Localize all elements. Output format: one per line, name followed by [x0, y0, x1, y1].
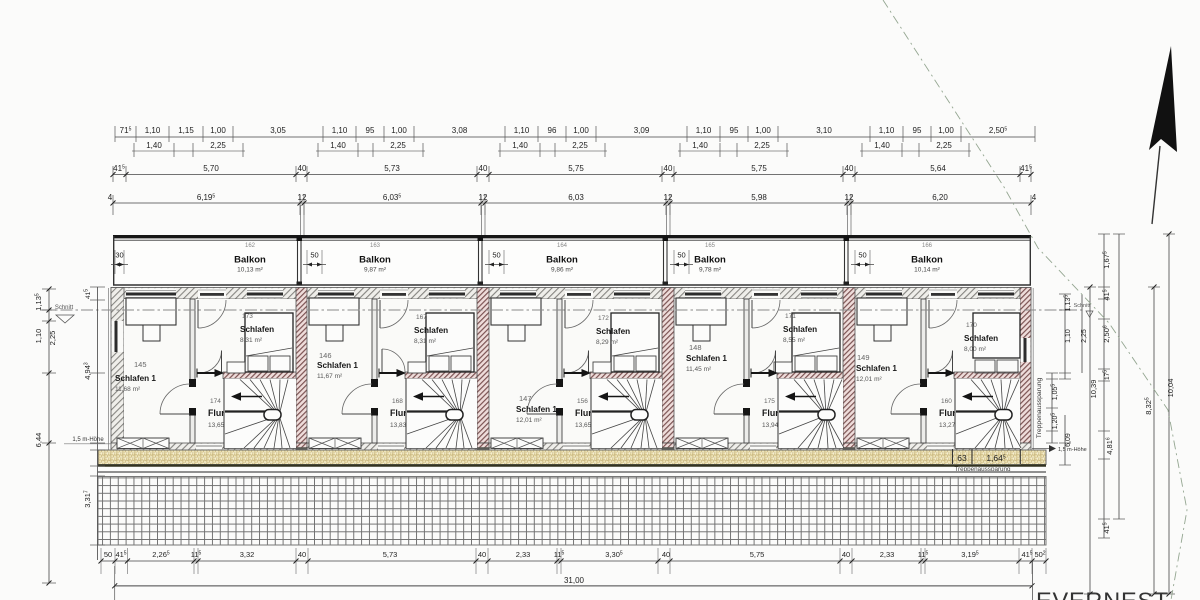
svg-text:40: 40 [845, 164, 854, 173]
svg-text:6,44: 6,44 [34, 433, 43, 448]
svg-text:12: 12 [664, 193, 673, 202]
svg-text:Schlafen 1: Schlafen 1 [516, 405, 557, 414]
svg-text:1,5 m-Höhe: 1,5 m-Höhe [72, 437, 104, 443]
svg-text:10,13 m²: 10,13 m² [237, 267, 263, 274]
svg-text:1,10: 1,10 [696, 126, 712, 135]
svg-text:40: 40 [298, 164, 307, 173]
svg-text:Balkon: Balkon [546, 255, 578, 266]
svg-text:11,67 m²: 11,67 m² [317, 373, 343, 380]
svg-text:10,14 m²: 10,14 m² [914, 267, 940, 274]
svg-text:12,01 m²: 12,01 m² [516, 417, 542, 424]
svg-text:1,10: 1,10 [879, 126, 895, 135]
svg-text:Balkon: Balkon [911, 255, 943, 266]
svg-text:50: 50 [858, 251, 866, 260]
svg-text:Schlafen 1: Schlafen 1 [686, 354, 727, 363]
svg-text:2,25: 2,25 [48, 331, 57, 346]
svg-text:1,15: 1,15 [178, 126, 194, 135]
svg-text:163: 163 [370, 243, 381, 249]
svg-text:Flur: Flur [390, 408, 407, 418]
svg-text:1,10: 1,10 [1065, 329, 1072, 343]
svg-text:5,73: 5,73 [384, 164, 400, 173]
svg-text:96: 96 [548, 126, 557, 135]
svg-text:50: 50 [104, 550, 112, 559]
svg-text:167: 167 [416, 314, 427, 321]
svg-text:2,25: 2,25 [572, 141, 588, 150]
svg-text:171: 171 [785, 313, 796, 320]
svg-text:Flur: Flur [762, 408, 779, 418]
svg-text:166: 166 [922, 243, 933, 249]
svg-text:4: 4 [108, 193, 113, 202]
svg-text:Balkon: Balkon [694, 255, 726, 266]
svg-text:5,73: 5,73 [383, 550, 398, 559]
svg-text:1,00: 1,00 [755, 126, 771, 135]
svg-text:175: 175 [764, 398, 775, 405]
svg-text:1,10: 1,10 [332, 126, 348, 135]
svg-text:5,75: 5,75 [751, 164, 767, 173]
svg-text:1,40: 1,40 [330, 141, 346, 150]
svg-text:11,68 m²: 11,68 m² [115, 386, 141, 393]
svg-text:50: 50 [310, 251, 318, 260]
svg-text:168: 168 [392, 398, 403, 405]
svg-text:160: 160 [941, 398, 952, 405]
svg-text:1,10: 1,10 [145, 126, 161, 135]
svg-text:1,10: 1,10 [34, 329, 43, 344]
svg-text:1,00: 1,00 [210, 126, 226, 135]
svg-text:40: 40 [298, 550, 306, 559]
svg-text:1,40: 1,40 [692, 141, 708, 150]
svg-text:40: 40 [664, 164, 673, 173]
svg-text:Flur: Flur [939, 408, 956, 418]
svg-text:Schlafen 1: Schlafen 1 [115, 374, 156, 383]
svg-text:5,64: 5,64 [930, 164, 946, 173]
svg-text:9,78 m²: 9,78 m² [699, 267, 722, 274]
svg-text:2,25: 2,25 [936, 141, 952, 150]
svg-text:Schlafen 1: Schlafen 1 [856, 364, 897, 373]
svg-text:3,05: 3,05 [270, 126, 286, 135]
svg-text:40: 40 [662, 550, 670, 559]
svg-text:156: 156 [577, 398, 588, 405]
svg-text:2,33: 2,33 [516, 550, 531, 559]
svg-text:2,25: 2,25 [754, 141, 770, 150]
svg-text:3,32: 3,32 [240, 550, 255, 559]
svg-text:40: 40 [479, 164, 488, 173]
svg-text:147: 147 [519, 394, 532, 403]
svg-text:5,98: 5,98 [751, 193, 767, 202]
svg-text:1,40: 1,40 [146, 141, 162, 150]
svg-text:170: 170 [966, 322, 977, 329]
svg-text:6,20: 6,20 [932, 193, 948, 202]
svg-text:6,09: 6,09 [1065, 433, 1072, 447]
svg-text:3,08: 3,08 [452, 126, 468, 135]
svg-text:Schnitt: Schnitt [55, 305, 74, 311]
svg-text:8,31 m²: 8,31 m² [240, 337, 263, 344]
svg-text:Schlafen: Schlafen [240, 325, 274, 334]
svg-text:40: 40 [842, 550, 850, 559]
svg-text:Treppenaussparung: Treppenaussparung [1036, 377, 1043, 438]
svg-text:30: 30 [115, 251, 123, 260]
svg-text:165: 165 [705, 243, 716, 249]
svg-text:Schlafen: Schlafen [783, 325, 817, 334]
svg-text:3,09: 3,09 [634, 126, 650, 135]
svg-text:1,00: 1,00 [573, 126, 589, 135]
svg-text:Flur: Flur [575, 408, 592, 418]
svg-text:1,40: 1,40 [512, 141, 528, 150]
svg-text:63: 63 [957, 453, 967, 463]
svg-text:12: 12 [845, 193, 854, 202]
svg-text:1,40: 1,40 [874, 141, 890, 150]
svg-text:Balkon: Balkon [359, 255, 391, 266]
svg-text:1,5 m-Höhe: 1,5 m-Höhe [1058, 447, 1087, 453]
svg-text:174: 174 [210, 398, 221, 405]
svg-text:95: 95 [730, 126, 739, 135]
svg-text:95: 95 [366, 126, 375, 135]
svg-text:95: 95 [913, 126, 922, 135]
svg-text:2,33: 2,33 [880, 550, 895, 559]
svg-text:145: 145 [134, 360, 147, 369]
svg-text:Schlafen: Schlafen [596, 327, 630, 336]
svg-text:6,03: 6,03 [568, 193, 584, 202]
svg-text:164: 164 [557, 243, 568, 249]
svg-text:162: 162 [245, 243, 256, 249]
svg-text:1,10: 1,10 [514, 126, 530, 135]
svg-text:50: 50 [677, 251, 685, 260]
svg-text:149: 149 [857, 353, 870, 362]
svg-text:Schlafen 1: Schlafen 1 [317, 361, 358, 370]
svg-text:12: 12 [479, 193, 488, 202]
svg-text:40: 40 [478, 550, 486, 559]
svg-text:9,87 m²: 9,87 m² [364, 267, 387, 274]
svg-text:2,25: 2,25 [1081, 329, 1088, 343]
svg-text:2,25: 2,25 [210, 141, 226, 150]
svg-text:1,00: 1,00 [391, 126, 407, 135]
svg-text:172: 172 [598, 315, 609, 322]
svg-text:8,55 m²: 8,55 m² [783, 337, 806, 344]
svg-text:31,00: 31,00 [564, 576, 585, 585]
svg-text:11,45 m²: 11,45 m² [686, 366, 712, 373]
svg-text:12: 12 [298, 193, 307, 202]
svg-text:8,29 m²: 8,29 m² [596, 339, 619, 346]
svg-text:5,75: 5,75 [568, 164, 584, 173]
svg-text:5,75: 5,75 [750, 550, 765, 559]
svg-text:173: 173 [242, 313, 253, 320]
svg-text:Schlafen: Schlafen [964, 334, 998, 343]
svg-text:Balkon: Balkon [234, 255, 266, 266]
svg-text:8,31 m²: 8,31 m² [414, 338, 437, 345]
svg-text:148: 148 [689, 343, 702, 352]
svg-text:1,00: 1,00 [938, 126, 954, 135]
svg-text:12,01 m²: 12,01 m² [856, 376, 882, 383]
svg-text:10,04: 10,04 [1166, 379, 1175, 398]
svg-text:Schlafen: Schlafen [414, 326, 448, 335]
svg-text:10,39: 10,39 [1089, 380, 1098, 399]
svg-text:4: 4 [1032, 193, 1037, 202]
svg-text:9,86 m²: 9,86 m² [551, 267, 574, 274]
svg-text:146: 146 [319, 351, 332, 360]
svg-text:Flur: Flur [208, 408, 225, 418]
svg-text:50: 50 [492, 251, 500, 260]
svg-text:8,00 m²: 8,00 m² [964, 346, 987, 353]
svg-text:5,70: 5,70 [203, 164, 219, 173]
svg-text:2,25: 2,25 [390, 141, 406, 150]
svg-text:3,10: 3,10 [816, 126, 832, 135]
